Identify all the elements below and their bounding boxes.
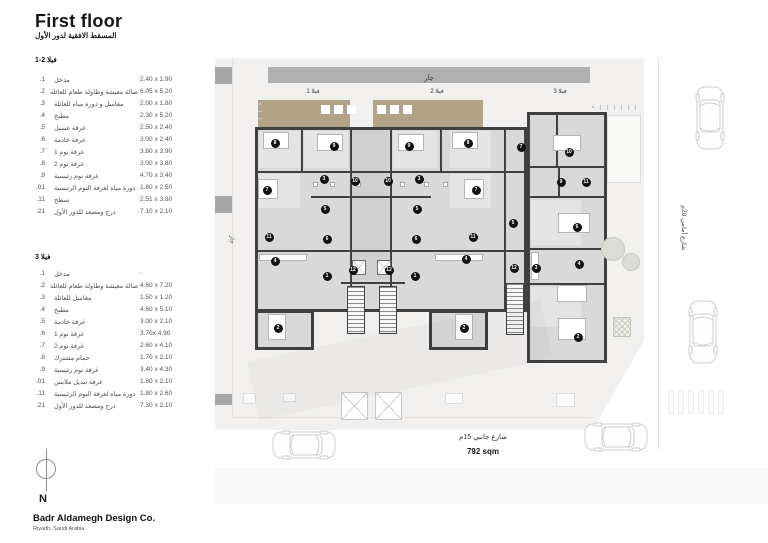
room-name-arabic: غرفة نوم 2 [54, 342, 138, 350]
wall [350, 129, 352, 310]
crosswalk-bar [678, 390, 684, 414]
room-name-arabic: دورة مياه لغرفة النوم الرئيسية [54, 184, 138, 192]
room-number: .6 [33, 330, 45, 337]
entrance-canopy [375, 392, 402, 420]
wall [390, 129, 392, 310]
setback-line [232, 417, 595, 418]
wall [558, 166, 560, 198]
legend-row: .5 غرفة غسيل 2.50 x 2.40 [33, 124, 213, 136]
room-number: .3 [33, 294, 45, 301]
planter [613, 317, 631, 337]
bed [263, 132, 289, 149]
room-number: .21 [33, 208, 45, 215]
room-name-arabic: غرفة تبديل ملابس [54, 378, 138, 386]
bed [558, 213, 590, 233]
room-name-arabic: دورة مياه لغرفة النوم الرئيسية [54, 390, 138, 398]
wall [311, 196, 431, 198]
room-number: .1 [33, 270, 45, 277]
wall [529, 196, 605, 198]
legend-row: .1 مدخل - [33, 270, 213, 282]
room-name-arabic: غرفة نوم 1 [54, 330, 138, 338]
room-dimensions: 7.30 x 2.10 [140, 402, 172, 409]
room-name-arabic: مطبخ [54, 112, 138, 120]
room-dimensions: 1.80 x 2.50 [140, 184, 172, 191]
page-subtitle-arabic: المسقط الافقية لدور الأول [35, 31, 116, 40]
room-name-arabic: صالة معيشة وطاولة طعام للعائلة [54, 88, 138, 96]
tree [622, 253, 640, 271]
legend-row: .6 غرفة نوم 1 3.70x 4.90 [33, 330, 213, 342]
room-number: .2 [33, 88, 45, 95]
company-location: Riyadh, Saudi Arabia. [33, 526, 86, 532]
skylight [390, 105, 399, 114]
vent-dots [591, 105, 641, 110]
vent-dots [258, 102, 262, 122]
plot-area-label: 792 sqm [383, 447, 583, 456]
sofa [558, 318, 586, 340]
neighbor-label-top: جار [424, 74, 434, 82]
legend-row: .11 سطح 2.51 x 3.80 [33, 196, 213, 208]
crosswalk-bar [668, 390, 674, 414]
room-dimensions: 1.70 x 2.10 [140, 354, 172, 361]
bath-fixture [400, 182, 405, 187]
legend-row: .8 حمام مشترك 1.70 x 2.10 [33, 354, 213, 366]
room-number: .11 [33, 196, 45, 203]
bed [398, 134, 424, 151]
dining-table [557, 285, 587, 302]
room-number: .9 [33, 366, 45, 373]
room-name-arabic: درج ومصعد للدور الأول [54, 208, 138, 216]
room-dimensions: 2.30 x 5.20 [140, 112, 172, 119]
legend-row: .21 درج ومصعد للدور الأول 7.30 x 2.10 [33, 402, 213, 414]
legend-villa-1-2: .1 مدخل 2.40 x 1.90 .2 صالة معيشة وطاولة… [33, 76, 213, 220]
room-number: .4 [33, 306, 45, 313]
elevator [352, 260, 366, 275]
villa-2-label: فيلا 2 [409, 88, 465, 95]
porch [556, 393, 575, 407]
room-dimensions: 4.60 x 5.10 [140, 306, 172, 313]
room-dimensions: 3.00 x 2.40 [140, 136, 172, 143]
corridor [352, 130, 389, 280]
room-dimensions: 1.80 x 2.10 [140, 378, 172, 385]
room-number: .2 [33, 282, 45, 289]
room-number: .3 [33, 100, 45, 107]
room-name-arabic: غرفة خادمة [54, 318, 138, 326]
room-dimensions: 2.50 x 2.40 [140, 124, 172, 131]
neighbor-strip: جار [268, 67, 590, 83]
stairs-villa-1 [347, 286, 365, 334]
room-dimensions: 3.00 x 2.10 [140, 318, 172, 325]
room-name-arabic: غرفة خادمة [54, 136, 138, 144]
room-number: .4 [33, 112, 45, 119]
room-dimensions: 3.40 x 4.30 [140, 366, 172, 373]
room-dimensions: 4.70 x 3.40 [140, 172, 172, 179]
room-number: .01 [33, 378, 45, 385]
skylight [334, 105, 343, 114]
room-name-arabic: غرفة نوم 2 [54, 160, 138, 168]
room-number: .5 [33, 318, 45, 325]
bed [553, 135, 581, 151]
wall [440, 129, 442, 173]
neighbor-label-left: جار [229, 235, 236, 243]
villa-1-label: فيلا 1 [285, 88, 341, 95]
legend-heading-villa-1-2: فيلا 2-1 [35, 56, 57, 64]
skylight [347, 105, 356, 114]
room-dimensions: 3.70x 4.90 [140, 330, 170, 337]
north-label: N [39, 493, 47, 505]
legend-row: .3 مغاسل للعائلة 1.50 x 1.20 [33, 294, 213, 306]
crosswalk-bar [708, 390, 714, 414]
legend-row: .01 دورة مياه لغرفة النوم الرئيسية 1.80 … [33, 184, 213, 196]
north-arrow-icon [36, 459, 56, 479]
legend-row: .7 غرفة نوم 1 3.80 x 3.90 [33, 148, 213, 160]
room-dimensions: - [140, 270, 142, 277]
car-icon [584, 422, 648, 452]
neighbor-block [215, 196, 232, 213]
room-number: .21 [33, 402, 45, 409]
company-name: Badr Aldamegh Design Co. [33, 513, 155, 524]
crosswalk-bar [718, 390, 724, 414]
wall [529, 166, 605, 168]
bed [464, 179, 484, 199]
kitchen-counter [531, 252, 539, 280]
neighbor-block [215, 394, 232, 405]
room-number: .8 [33, 160, 45, 167]
room-number: .8 [33, 354, 45, 361]
legend-row: .9 غرفة نوم رئيسية 4.70 x 3.40 [33, 172, 213, 184]
legend-row: .5 غرفة خادمة 3.00 x 2.10 [33, 318, 213, 330]
legend-villa-3: .1 مدخل - .2 صالة معيشة وطاولة طعام للعا… [33, 270, 213, 414]
legend-row: .4 مطبخ 2.30 x 5.20 [33, 112, 213, 124]
room-dimensions: 4.60 x 7.20 [140, 282, 172, 289]
stairs-villa-2 [379, 286, 397, 334]
page-title: First floor [35, 11, 122, 32]
skylight [321, 105, 330, 114]
room-name-arabic: غرفة نوم رئيسية [54, 172, 138, 180]
legend-heading-villa-3: فيلا 3 [35, 253, 51, 261]
bath-fixture [424, 182, 429, 187]
legend-row: .8 غرفة نوم 2 3.00 x 3.80 [33, 160, 213, 172]
room-name-arabic: حمام مشترك [54, 354, 138, 362]
legend-row: .7 غرفة نوم 2 2.60 x 4.10 [33, 342, 213, 354]
room-number: .9 [33, 172, 45, 179]
crosswalk-bar [688, 390, 694, 414]
room-dimensions: 3.00 x 3.80 [140, 160, 172, 167]
room-name-arabic: درج ومصعد للدور الأول [54, 402, 138, 410]
room-dimensions: 2.40 x 1.90 [140, 76, 172, 83]
floor-plan-sheet: { "header": { "title": "First floor", "s… [0, 0, 768, 543]
room-name-arabic: غرفة غسيل [54, 124, 138, 132]
room-dimensions: 2.60 x 4.10 [140, 342, 172, 349]
room-dimensions: 6.05 x 5.20 [140, 88, 172, 95]
room-name-arabic: سطح [54, 196, 138, 204]
room-number: .6 [33, 136, 45, 143]
room-dimensions: 2.51 x 3.80 [140, 196, 172, 203]
roof-terrace [607, 115, 641, 183]
legend-row: .2 صالة معيشة وطاولة طعام للعائلة 6.05 x… [33, 88, 213, 100]
ground-shadow [215, 468, 768, 504]
room-name-arabic: مدخل [54, 76, 138, 84]
room-name-arabic: مطبخ [54, 306, 138, 314]
room-number: .11 [33, 390, 45, 397]
room-name-arabic: مغاسل و دورة مياه للعائلة [54, 100, 138, 108]
wall [301, 129, 303, 173]
kitchen-counter [435, 254, 483, 261]
kitchen-counter [259, 254, 307, 261]
front-street-label: شارع أمامي 20م [680, 205, 688, 251]
side-street-label: شارع جانبي 15م [383, 433, 583, 441]
bed [452, 132, 478, 149]
crosswalk-bar [698, 390, 704, 414]
room-number: .7 [33, 148, 45, 155]
room-name-arabic: صالة معيشة وطاولة طعام للعائلة [54, 282, 138, 290]
legend-row: .3 مغاسل و دورة مياه للعائلة 2.00 x 1.80 [33, 100, 213, 112]
legend-row: .2 صالة معيشة وطاولة طعام للعائلة 4.60 x… [33, 282, 213, 294]
tree [601, 237, 625, 261]
room-name-arabic: غرفة نوم 1 [54, 148, 138, 156]
porch [445, 393, 463, 404]
dining-table [268, 314, 286, 340]
room-dimensions: 7.10 x 2.10 [140, 208, 172, 215]
room-number: .1 [33, 76, 45, 83]
legend-row: .01 غرفة تبديل ملابس 1.80 x 2.10 [33, 378, 213, 390]
sidewalk-line [658, 58, 659, 450]
skylight [403, 105, 412, 114]
room-dimensions: 3.80 x 3.90 [140, 148, 172, 155]
legend-row: .4 مطبخ 4.60 x 5.10 [33, 306, 213, 318]
legend-row: .11 دورة مياه لغرفة النوم الرئيسية 1.80 … [33, 390, 213, 402]
bed [258, 179, 278, 199]
car-icon [688, 300, 718, 364]
room-name-arabic: مدخل [54, 270, 138, 278]
legend-row: .6 غرفة خادمة 3.00 x 2.40 [33, 136, 213, 148]
legend-row: .9 غرفة نوم رئيسية 3.40 x 4.30 [33, 366, 213, 378]
room-name-arabic: غرفة نوم رئيسية [54, 366, 138, 374]
neighbor-block [215, 67, 232, 84]
bath-fixture [330, 182, 335, 187]
room-dimensions: 2.00 x 1.80 [140, 100, 172, 107]
room-number: .7 [33, 342, 45, 349]
room-dimensions: 1.80 x 2.60 [140, 390, 172, 397]
legend-row: .21 درج ومصعد للدور الأول 7.10 x 2.10 [33, 208, 213, 220]
room-number: .01 [33, 184, 45, 191]
villa-3-label: فيلا 3 [532, 88, 588, 95]
bath-fixture [443, 182, 448, 187]
room-name-arabic: مغاسل للعائلة [54, 294, 138, 302]
car-icon [695, 86, 725, 150]
room-dimensions: 1.50 x 1.20 [140, 294, 172, 301]
legend-row: .1 مدخل 2.40 x 1.90 [33, 76, 213, 88]
car-icon [272, 430, 336, 460]
room-number: .5 [33, 124, 45, 131]
bath-fixture [356, 182, 361, 187]
wall [529, 248, 605, 250]
bath-fixture [313, 182, 318, 187]
skylight [377, 105, 386, 114]
bed [317, 134, 343, 151]
elevator [377, 260, 391, 275]
